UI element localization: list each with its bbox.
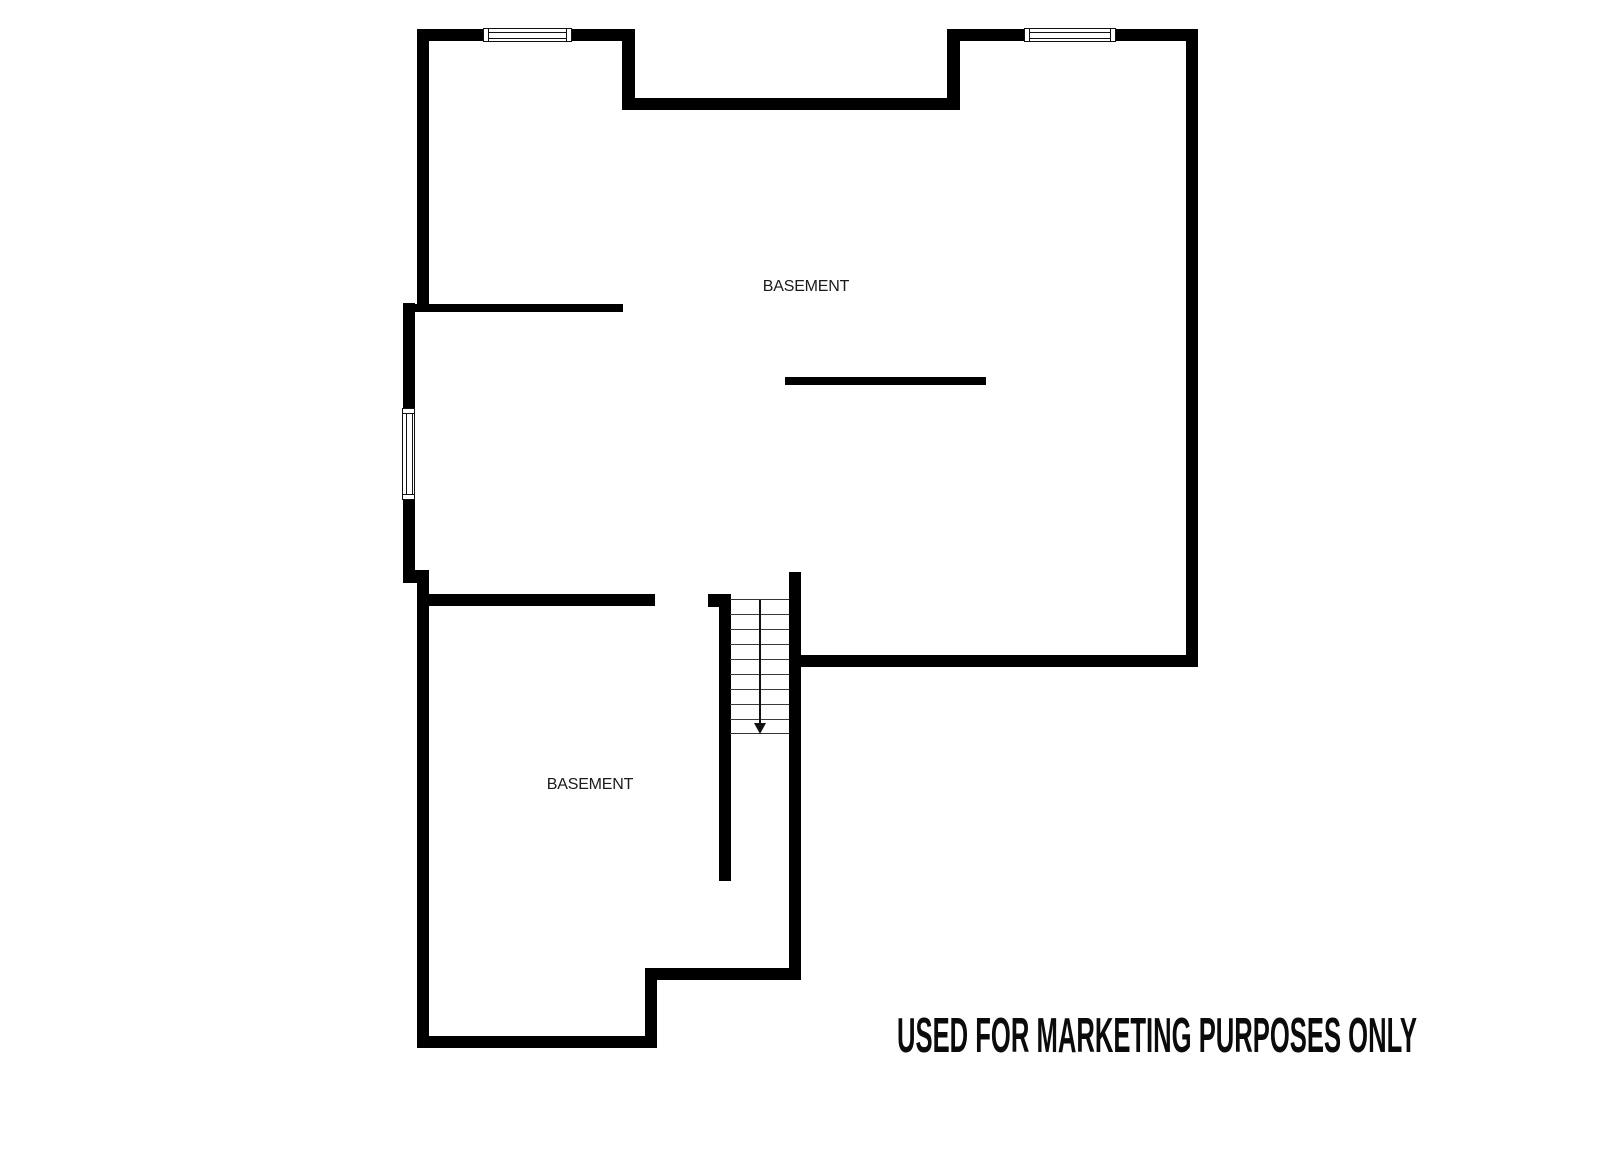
window-post [402, 408, 415, 414]
window-glass-lines [1025, 32, 1115, 39]
disclaimer-text: USED FOR MARKETING PURPOSES ONLY [897, 1009, 1417, 1063]
room-label-basement-lower: BASEMENT [547, 776, 633, 794]
disclaimer-banner: USED FOR MARKETING PURPOSES ONLY [890, 998, 1435, 1068]
window-top-right [1024, 28, 1116, 42]
window-post [1024, 28, 1030, 42]
tower-b-left-wall [947, 29, 960, 110]
stair-right-wall [789, 572, 801, 980]
window-post [483, 28, 489, 42]
room-label-basement-upper: BASEMENT [763, 278, 849, 296]
right-wall [1186, 29, 1198, 667]
window-glass-lines [484, 32, 571, 39]
recess-wall [622, 98, 960, 110]
window-post [402, 494, 415, 500]
big-room-bottom-wall [789, 655, 1198, 667]
window-post [1110, 28, 1116, 42]
tower-a-left-wall [417, 29, 429, 312]
stair-direction-arrow-head [754, 723, 766, 734]
bottom-wall [417, 1036, 657, 1048]
lower-left-wall [417, 570, 429, 1048]
window-glass-lines [406, 409, 413, 499]
window-top-left [483, 28, 572, 42]
interior-wall-upper [412, 304, 623, 312]
half-wall [785, 377, 986, 385]
floorplan-canvas: BASEMENT BASEMENT USED FOR MARKETING PUR… [0, 0, 1600, 1150]
staircase [730, 599, 789, 734]
window-post [566, 28, 572, 42]
interior-wall-lower [424, 594, 655, 606]
step-wall [645, 968, 801, 980]
stair-direction-arrow-shaft [759, 600, 761, 725]
window-left [402, 408, 415, 500]
